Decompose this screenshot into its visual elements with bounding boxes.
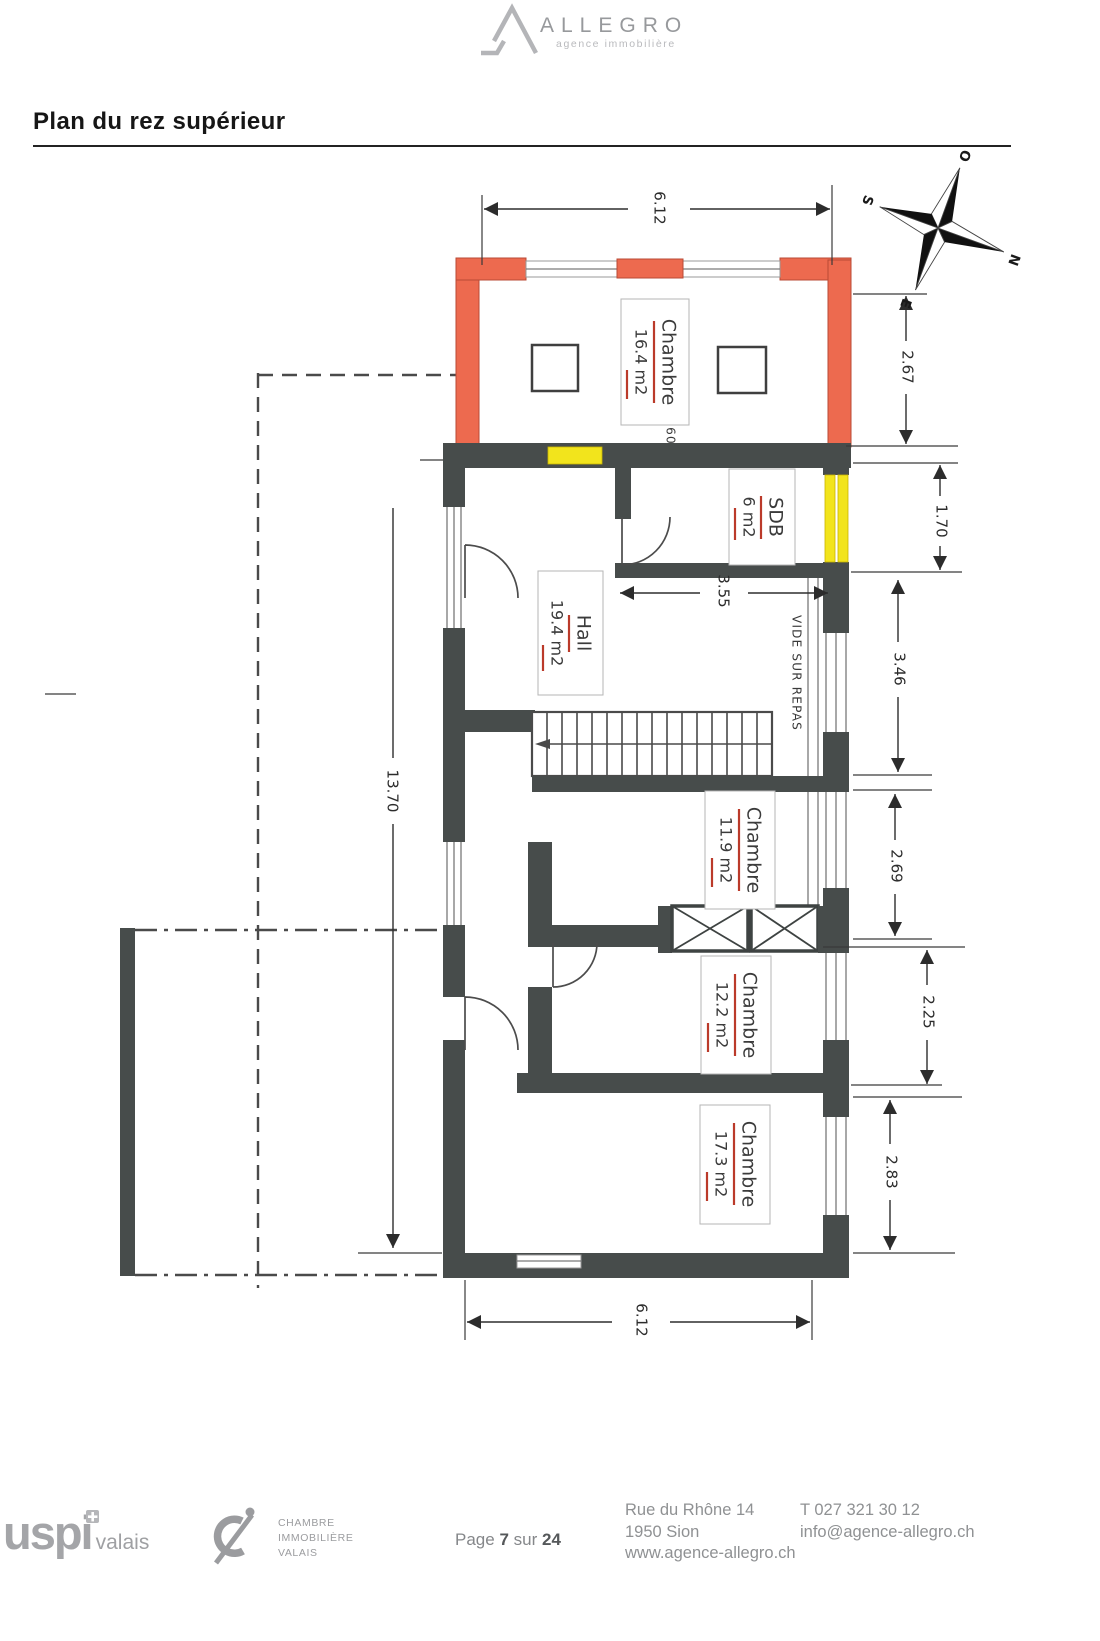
- floor-plan: 13.70 6.12: [0, 0, 1100, 1641]
- document-page: ALLEGRO agence immobilière Plan du rez s…: [0, 0, 1100, 1641]
- room-label-hall: Hall 19.4 m2: [538, 571, 603, 695]
- compass-west-label: O: [955, 148, 974, 164]
- compass-rose-icon: O S N E: [829, 122, 1050, 341]
- dim-label: 6.12: [633, 1303, 651, 1336]
- dim-label: 13.70: [384, 770, 402, 813]
- compass-south-label: S: [858, 193, 876, 208]
- dim-label: 1.70: [933, 504, 951, 537]
- room-name: Chambre: [739, 972, 761, 1059]
- chambre-immobiliere-logo-icon: [200, 1505, 270, 1567]
- room-name: SDB: [765, 497, 787, 537]
- contact-phone: T 027 321 30 12: [800, 1500, 975, 1522]
- ci-line: VALAIS: [278, 1546, 353, 1561]
- dim-left-height: 13.70: [358, 508, 442, 1253]
- uspi-logo-text: uspi: [3, 1506, 92, 1559]
- dim-bottom-width: 6.12: [465, 1280, 812, 1340]
- room-area: 17.3 m2: [712, 1131, 731, 1197]
- agency-contact: T 027 321 30 12 info@agence-allegro.ch: [800, 1500, 975, 1543]
- uspi-region-text: valais: [96, 1531, 150, 1554]
- room-area: 16.4 m2: [632, 329, 651, 395]
- room-label-chambre-12: Chambre 12.2 m2: [701, 956, 771, 1074]
- room-area: 19.4 m2: [548, 600, 567, 666]
- dim-label: 2.69: [888, 849, 906, 882]
- dim-label: 3.46: [891, 652, 909, 685]
- room-name: Chambre: [738, 1121, 760, 1208]
- room-label-sdb: SDB 6 m2: [729, 469, 795, 565]
- page-total: 24: [542, 1530, 561, 1549]
- room-name: Hall: [573, 615, 595, 652]
- room-area: 6 m2: [740, 496, 759, 537]
- room-name: Chambre: [658, 319, 680, 406]
- handwritten-note: 60: [664, 427, 678, 445]
- dim-label: 2.67: [899, 350, 917, 383]
- page-prefix: Page: [455, 1530, 495, 1549]
- staircase: [532, 712, 772, 776]
- vide-sur-repas-note: VIDE SUR REPAS: [790, 615, 804, 731]
- uspi-valais-logo: uspivalais: [3, 1505, 149, 1560]
- room-label-chambre-16: Chambre 16.4 m2: [621, 299, 689, 425]
- ci-line: IMMOBILIÈRE: [278, 1531, 353, 1546]
- compass-east-label: E: [896, 296, 914, 310]
- closet-boxes: [672, 906, 818, 951]
- contact-email[interactable]: info@agence-allegro.ch: [800, 1522, 975, 1544]
- compass-north-label: N: [1004, 252, 1023, 268]
- dim-label: 2.25: [920, 995, 938, 1028]
- room-name: Chambre: [743, 807, 765, 894]
- room-area: 11.9 m2: [717, 817, 736, 883]
- page-current: 7: [499, 1530, 508, 1549]
- room-label-chambre-11: Chambre 11.9 m2: [705, 791, 775, 909]
- ci-line: CHAMBRE: [278, 1516, 353, 1531]
- dim-label: 3.55: [715, 574, 733, 607]
- address-city: 1950 Sion: [625, 1522, 796, 1544]
- address-street: Rue du Rhône 14: [625, 1500, 796, 1522]
- swiss-cross-icon: [86, 1510, 100, 1524]
- agency-address: Rue du Rhône 14 1950 Sion www.agence-all…: [625, 1500, 796, 1565]
- address-website[interactable]: www.agence-allegro.ch: [625, 1543, 796, 1565]
- dim-label: 2.83: [883, 1155, 901, 1188]
- dim-top-width: 6.12: [482, 185, 832, 265]
- dim-hall-width: 3.55: [620, 574, 828, 607]
- chambre-immobiliere-text: CHAMBRE IMMOBILIÈRE VALAIS: [278, 1516, 353, 1561]
- room-label-chambre-17: Chambre 17.3 m2: [700, 1105, 770, 1224]
- page-separator: sur: [514, 1530, 538, 1549]
- page-number: Page 7 sur 24: [455, 1530, 561, 1550]
- roof-outline: [45, 373, 457, 1288]
- dim-label: 6.12: [651, 191, 669, 224]
- room-area: 12.2 m2: [713, 982, 732, 1048]
